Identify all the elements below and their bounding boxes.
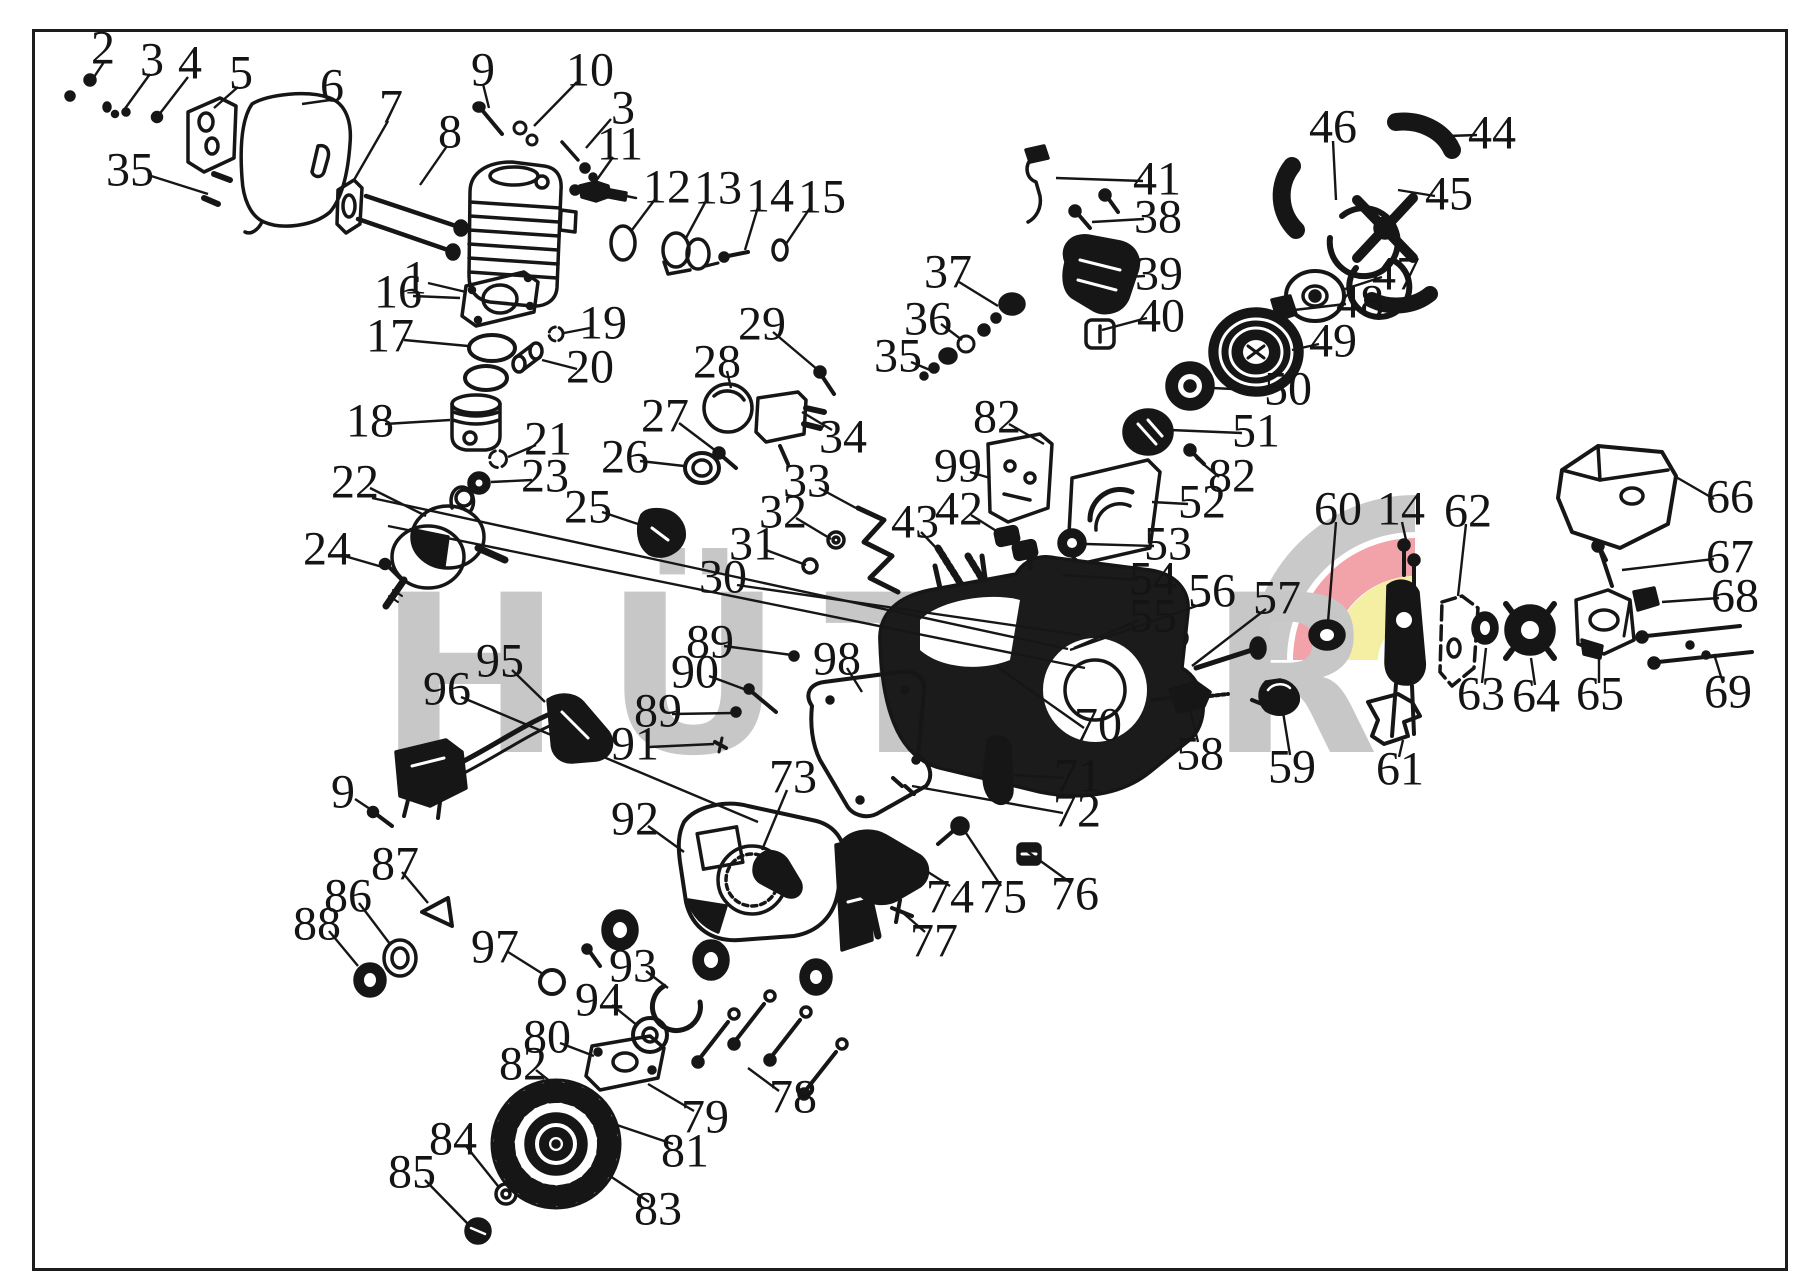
part-label-45: 45: [1425, 168, 1473, 221]
part-label-7: 7: [379, 81, 403, 134]
part-label-70: 70: [1074, 699, 1122, 752]
part-label-73: 73: [769, 751, 817, 804]
part-label-94: 94: [575, 974, 623, 1027]
part-label-83: 83: [634, 1183, 682, 1236]
part-label-87: 87: [371, 838, 419, 891]
part-label-95: 95: [476, 635, 524, 688]
part-label-60: 60: [1314, 483, 1362, 536]
part-label-37: 37: [924, 246, 972, 299]
part-label-40: 40: [1137, 290, 1185, 343]
leader-line-89: [724, 646, 792, 655]
leader-line-54: [1063, 575, 1139, 580]
part-label-18: 18: [346, 395, 394, 448]
leader-line-30: [737, 585, 1080, 635]
part-label-96: 96: [423, 663, 471, 716]
part-label-63: 63: [1457, 668, 1505, 721]
part-label-78: 78: [769, 1071, 817, 1124]
part-label-85: 85: [388, 1146, 436, 1199]
part-label-9: 9: [331, 766, 355, 819]
part-label-75: 75: [979, 871, 1027, 924]
part-label-66: 66: [1706, 471, 1754, 524]
part-label-49: 49: [1309, 315, 1357, 368]
part-label-77: 77: [910, 915, 958, 968]
part-label-8: 8: [438, 106, 462, 159]
part-label-61: 61: [1376, 743, 1424, 796]
part-label-20: 20: [566, 341, 614, 394]
part-label-9: 9: [471, 44, 495, 97]
part-label-4: 4: [178, 37, 202, 90]
part-label-28: 28: [693, 336, 741, 389]
part-label-3: 3: [140, 34, 164, 87]
leader-line-18: [385, 420, 450, 424]
leader-line-67: [1622, 559, 1714, 570]
part-label-34: 34: [819, 411, 867, 464]
parts-diagram-canvas: HÜTER: [0, 0, 1809, 1283]
part-label-44: 44: [1468, 107, 1516, 160]
part-label-59: 59: [1268, 741, 1316, 794]
leader-line-96: [461, 697, 758, 822]
part-label-27: 27: [641, 390, 689, 443]
leader-line-41: [1056, 178, 1143, 181]
part-label-82: 82: [973, 391, 1021, 444]
part-label-15: 15: [798, 171, 846, 224]
part-label-58: 58: [1176, 728, 1224, 781]
leader-line-72: [912, 786, 1063, 813]
part-label-46: 46: [1309, 101, 1357, 154]
part-label-76: 76: [1051, 868, 1099, 921]
leader-line-9: [355, 799, 376, 813]
part-label-65: 65: [1576, 668, 1624, 721]
part-label-6: 6: [320, 60, 344, 113]
part-label-17: 17: [366, 310, 414, 363]
part-label-23: 23: [521, 450, 569, 503]
part-label-11: 11: [597, 118, 643, 171]
part-label-35: 35: [106, 144, 154, 197]
leader-line-60: [1328, 522, 1336, 622]
part-label-56: 56: [1188, 565, 1236, 618]
part-label-41: 41: [1133, 153, 1181, 206]
part-label-24: 24: [303, 523, 351, 576]
part-label-35: 35: [874, 330, 922, 383]
part-label-81: 81: [661, 1125, 709, 1178]
part-label-29: 29: [738, 298, 786, 351]
part-label-92: 92: [611, 793, 659, 846]
part-label-69: 69: [1704, 666, 1752, 719]
leader-line-1: [428, 283, 466, 292]
part-label-2: 2: [91, 22, 115, 75]
part-label-98: 98: [813, 633, 861, 686]
part-label-68: 68: [1711, 570, 1759, 623]
callout-overlay: 2345678910311121314151161718192021232224…: [0, 0, 1809, 1283]
part-label-13: 13: [694, 162, 742, 215]
part-label-57: 57: [1253, 572, 1301, 625]
part-label-82: 82: [499, 1038, 547, 1091]
part-label-25: 25: [564, 481, 612, 534]
part-label-97: 97: [471, 921, 519, 974]
leader-line-70: [996, 666, 1084, 728]
part-label-99: 99: [934, 440, 982, 493]
part-label-5: 5: [229, 47, 253, 100]
part-label-64: 64: [1512, 670, 1560, 723]
part-label-72: 72: [1053, 785, 1101, 838]
part-label-22: 22: [331, 456, 379, 509]
part-label-12: 12: [643, 161, 691, 214]
part-label-62: 62: [1444, 485, 1492, 538]
part-label-14: 14: [1377, 483, 1425, 536]
part-label-10: 10: [566, 44, 614, 97]
part-label-88: 88: [293, 898, 341, 951]
part-label-43: 43: [891, 496, 939, 549]
leader-line-35: [148, 175, 208, 194]
part-label-84: 84: [429, 1113, 477, 1166]
part-label-14: 14: [746, 170, 794, 223]
